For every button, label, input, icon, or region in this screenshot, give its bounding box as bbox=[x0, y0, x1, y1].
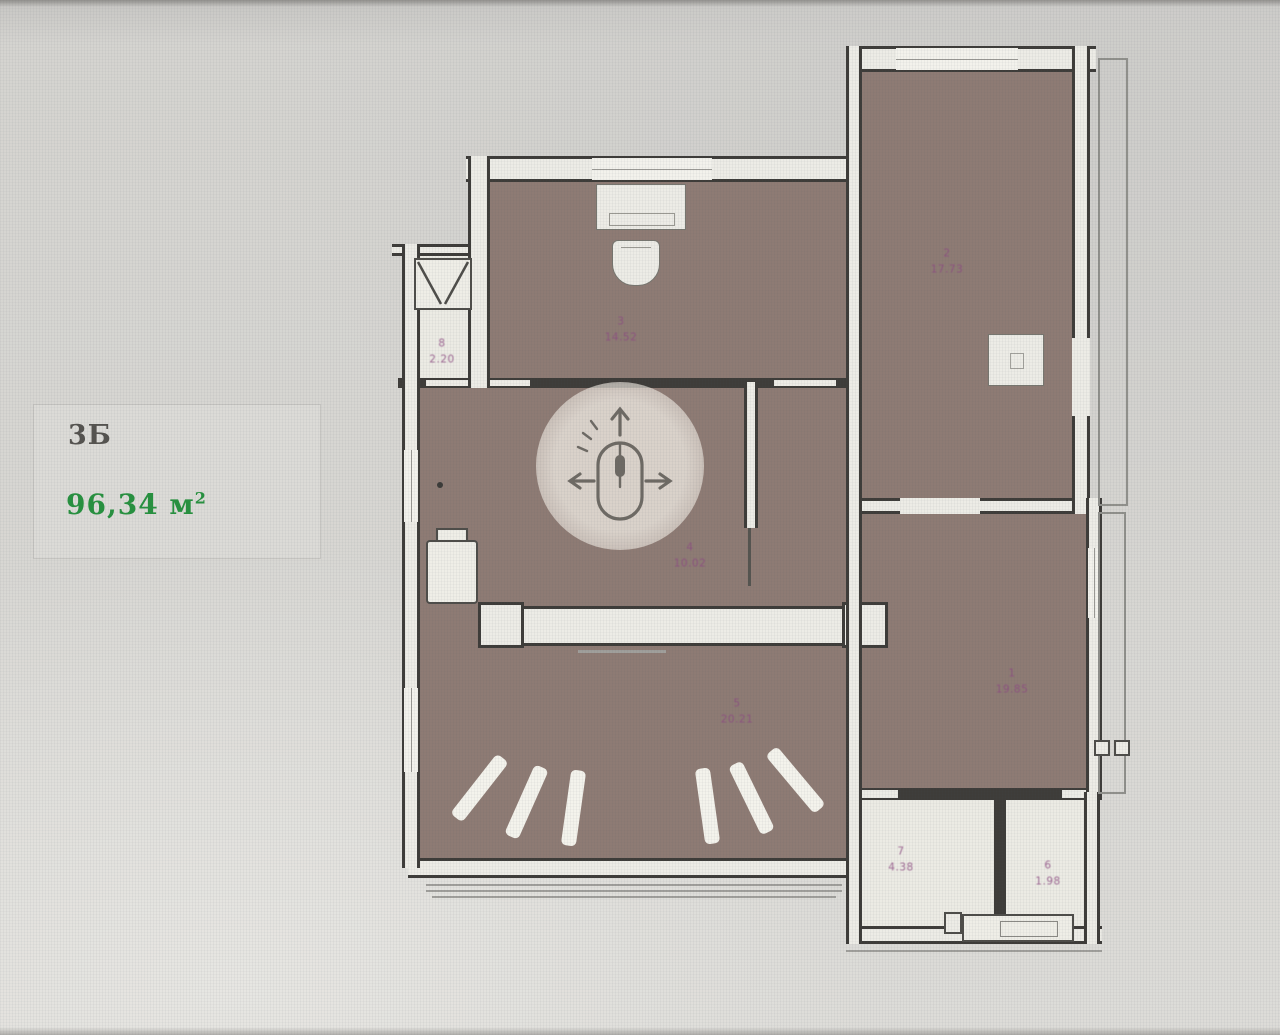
wall-right-room6 bbox=[1084, 792, 1100, 944]
room-label-3: 314.52 bbox=[605, 314, 638, 347]
bathroom-counter-icon bbox=[962, 914, 1074, 942]
door-gap-room8 bbox=[426, 380, 470, 386]
photo-top-edge bbox=[0, 0, 1280, 7]
room-label-6: 61.98 bbox=[1035, 858, 1060, 891]
door-gap-room1 bbox=[900, 498, 980, 514]
mouse-pan-icon bbox=[560, 399, 680, 529]
photo-bottom-edge bbox=[0, 1027, 1280, 1035]
sink-line bbox=[621, 247, 651, 248]
wall-left-room7 bbox=[846, 788, 862, 944]
outer-line-bottom-right bbox=[846, 950, 1102, 952]
door-gap-room3 bbox=[488, 380, 530, 386]
bathroom-box-icon bbox=[944, 912, 962, 934]
door-gap-room7 bbox=[856, 790, 898, 798]
wall-left-outer bbox=[402, 244, 420, 868]
corridor-fill bbox=[752, 386, 852, 630]
room-1-fill bbox=[858, 510, 1094, 798]
terrace-line-1 bbox=[426, 884, 842, 886]
wall-bottom-room5 bbox=[408, 858, 858, 878]
window-left-2 bbox=[402, 688, 420, 772]
wall-room4-room5 bbox=[480, 606, 888, 646]
door-leaf-room5 bbox=[578, 650, 666, 653]
window-room2-top bbox=[896, 46, 1018, 72]
room-label-8: 82.20 bbox=[429, 336, 454, 369]
room-label-1: 119.85 bbox=[996, 666, 1029, 699]
electric-panel-icon bbox=[988, 334, 1044, 386]
wall-right-room2 bbox=[1072, 46, 1090, 514]
room-2-fill bbox=[852, 60, 1080, 508]
room-label-2: 217.73 bbox=[931, 246, 964, 279]
floorplan-canvas[interactable]: 119.85 217.73 314.52 410.02 520.21 61.98… bbox=[0, 0, 1280, 1035]
wall-room7-room6 bbox=[994, 792, 1006, 932]
balcony-door-gap-room2 bbox=[1072, 338, 1090, 416]
plan-dot-marker bbox=[437, 482, 443, 488]
kitchen-counter-icon bbox=[596, 184, 686, 230]
ventilation-shaft-icon bbox=[414, 258, 472, 310]
wall-left-room1 bbox=[846, 498, 862, 800]
room-label-5: 520.21 bbox=[721, 696, 754, 729]
terrace-line-3 bbox=[432, 896, 836, 898]
wall-left-room2 bbox=[846, 46, 862, 514]
wall-room4-corridor bbox=[744, 382, 758, 528]
electric-panel-mark bbox=[1010, 353, 1024, 369]
balcony-post-1 bbox=[1094, 740, 1110, 756]
kitchen-counter-inner bbox=[609, 213, 675, 226]
door-gap-corridor-room3 bbox=[774, 380, 836, 386]
washing-machine-icon bbox=[426, 540, 478, 604]
room-label-7: 74.38 bbox=[888, 844, 913, 877]
terrace-line-2 bbox=[426, 890, 842, 892]
balcony-outline-top bbox=[1098, 58, 1128, 506]
door-leaf-corridor bbox=[748, 528, 751, 586]
sink-icon bbox=[612, 240, 660, 286]
room-label-4: 410.02 bbox=[674, 540, 707, 573]
bathroom-counter-inner bbox=[1000, 921, 1058, 937]
window-left-1 bbox=[402, 450, 420, 522]
balcony-post-2 bbox=[1114, 740, 1130, 756]
wall-column-left bbox=[478, 602, 524, 648]
room-5-fill bbox=[416, 630, 856, 866]
window-room3-top bbox=[592, 156, 712, 182]
